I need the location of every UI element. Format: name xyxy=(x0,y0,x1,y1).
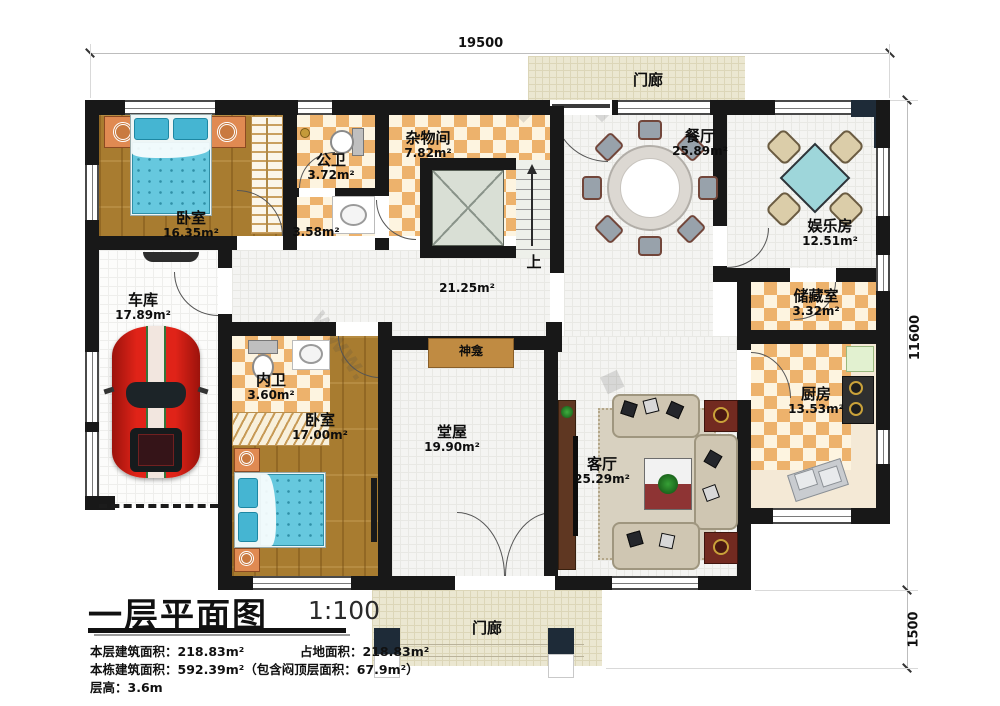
bath-inner-label: 内卫 3.60m² xyxy=(247,372,294,402)
dining-table-top xyxy=(620,158,680,218)
sofa-bottom xyxy=(612,522,700,570)
dimension-top-label: 19500 xyxy=(458,36,503,51)
window-entertainment-top xyxy=(775,100,851,115)
elevator-wall-left xyxy=(420,158,432,258)
door-gap-kitchen xyxy=(737,350,751,400)
fridge xyxy=(846,346,874,372)
area-line1b: 占地面积：218.83m² xyxy=(300,641,429,660)
storage-label: 储藏室 3.32m² xyxy=(792,288,839,318)
side-table-decor xyxy=(713,407,729,423)
nightstand-lamp xyxy=(239,551,254,566)
kitchen-label: 厨房 13.53m² xyxy=(788,386,844,416)
window-garage-left xyxy=(85,352,99,422)
window-kitchen-right xyxy=(876,430,890,464)
window-bedroom1-top xyxy=(125,100,215,115)
door-gap-entertainment xyxy=(713,226,727,266)
porch-footing xyxy=(548,654,574,678)
porch-bottom-label: 门廊 xyxy=(472,620,502,637)
bed2-pillow xyxy=(238,512,258,542)
dining-chair xyxy=(582,176,602,200)
stove-burner xyxy=(849,402,863,416)
nightstand-lamp xyxy=(239,451,254,466)
floor-plan: 19500 11600 1500 门廊 门廊 www. ◆ ◆ ◆ xyxy=(0,0,1000,706)
shrine-label: 神龛 xyxy=(459,345,483,358)
living-label: 客厅 25.29m² xyxy=(574,456,630,486)
hall-label: 堂屋 19.90m² xyxy=(424,424,480,454)
witness-line xyxy=(889,44,890,98)
towel-hook xyxy=(300,128,310,138)
corridor-label: 21.25m² xyxy=(439,282,495,295)
stairs xyxy=(516,160,550,258)
area-line2: 本栋建筑面积：592.39m²（包含闷顶层面积：67.9m²） xyxy=(90,659,419,678)
witness-line xyxy=(90,44,91,98)
witness-line xyxy=(606,668,918,669)
door-gap-bath xyxy=(299,188,335,197)
area-line1a: 本层建筑面积：218.83m² xyxy=(90,641,244,660)
dining-label: 餐厅 25.89m² xyxy=(672,128,728,158)
title-underline-shadow xyxy=(94,634,350,636)
door-gap-garage xyxy=(218,268,232,314)
side-table-decor xyxy=(713,539,729,555)
garage-label: 车库 17.89m² xyxy=(115,292,171,322)
bath-public-label: 公卫 3.72m² xyxy=(307,152,354,182)
stairs-arrow-line xyxy=(531,172,533,246)
car-engine-detail xyxy=(138,434,174,466)
dining-chair xyxy=(638,120,662,140)
sofa-right xyxy=(694,434,738,530)
bed2-pillow xyxy=(238,478,258,508)
entertainment-label: 娱乐房 12.51m² xyxy=(802,218,858,248)
bedroom2-label: 卧室 17.00m² xyxy=(292,412,348,442)
wall-kitchen-top xyxy=(751,330,876,344)
bed1-pillow xyxy=(134,118,169,140)
dining-chair xyxy=(638,236,662,256)
stove-burner xyxy=(849,381,863,395)
wall-bedroom2-right xyxy=(378,322,392,576)
porch-column xyxy=(548,628,574,654)
wall-corridor-dining xyxy=(550,106,564,273)
door-gap-hall-french xyxy=(455,576,555,590)
bed1-pillow xyxy=(173,118,208,140)
car-windshield xyxy=(126,382,186,408)
dimension-right-label: 11600 xyxy=(908,315,923,360)
window-dining-top xyxy=(618,100,710,115)
cabinet-plant xyxy=(561,406,573,418)
window-living-bottom xyxy=(612,576,698,590)
stairs-up-label: 上 xyxy=(526,254,541,271)
window-bedroom1-left xyxy=(85,165,99,220)
wall-hall-living xyxy=(544,350,558,576)
wash-basin xyxy=(299,344,323,364)
garage-door-dashed xyxy=(99,504,218,508)
bedroom2-tv xyxy=(371,478,377,542)
sofa-pillow xyxy=(659,533,676,550)
toilet-tank xyxy=(248,340,278,354)
door-gap-bath-inner xyxy=(336,322,380,336)
witness-line xyxy=(755,590,918,591)
elevator-wall-bottom xyxy=(420,246,516,258)
window-storage-right xyxy=(876,255,890,291)
bath-public-area2-label: 3.58m² xyxy=(292,226,339,239)
elevator-shaft xyxy=(432,170,504,246)
window-entertainment-right xyxy=(876,148,890,216)
window-bath-top xyxy=(298,100,332,115)
wall-stub xyxy=(546,322,562,352)
window-kitchen-bottom xyxy=(773,508,851,524)
wash-basin xyxy=(340,204,367,226)
window-garage-left2 xyxy=(85,432,99,496)
stairs-arrow-head xyxy=(527,164,537,174)
bedroom1-label: 卧室 16.35m² xyxy=(163,210,219,240)
plan-scale: 1:100 xyxy=(308,596,380,625)
nightstand-lamp xyxy=(217,122,237,142)
dimension-right-lower-label: 1500 xyxy=(907,611,922,647)
door-gap-bedroom1 xyxy=(237,236,285,250)
bedroom1-dresser xyxy=(143,252,199,262)
dimension-line-top xyxy=(90,53,890,54)
title-underline xyxy=(88,628,346,633)
dining-chair xyxy=(698,176,718,200)
coffee-table-plant xyxy=(658,474,678,494)
door-gap-storage xyxy=(790,268,836,282)
floor-height-line: 层高：3.6m xyxy=(90,677,163,696)
utility-label: 杂物间 7.82m² xyxy=(404,130,451,160)
porch-top-label: 门廊 xyxy=(633,72,663,89)
